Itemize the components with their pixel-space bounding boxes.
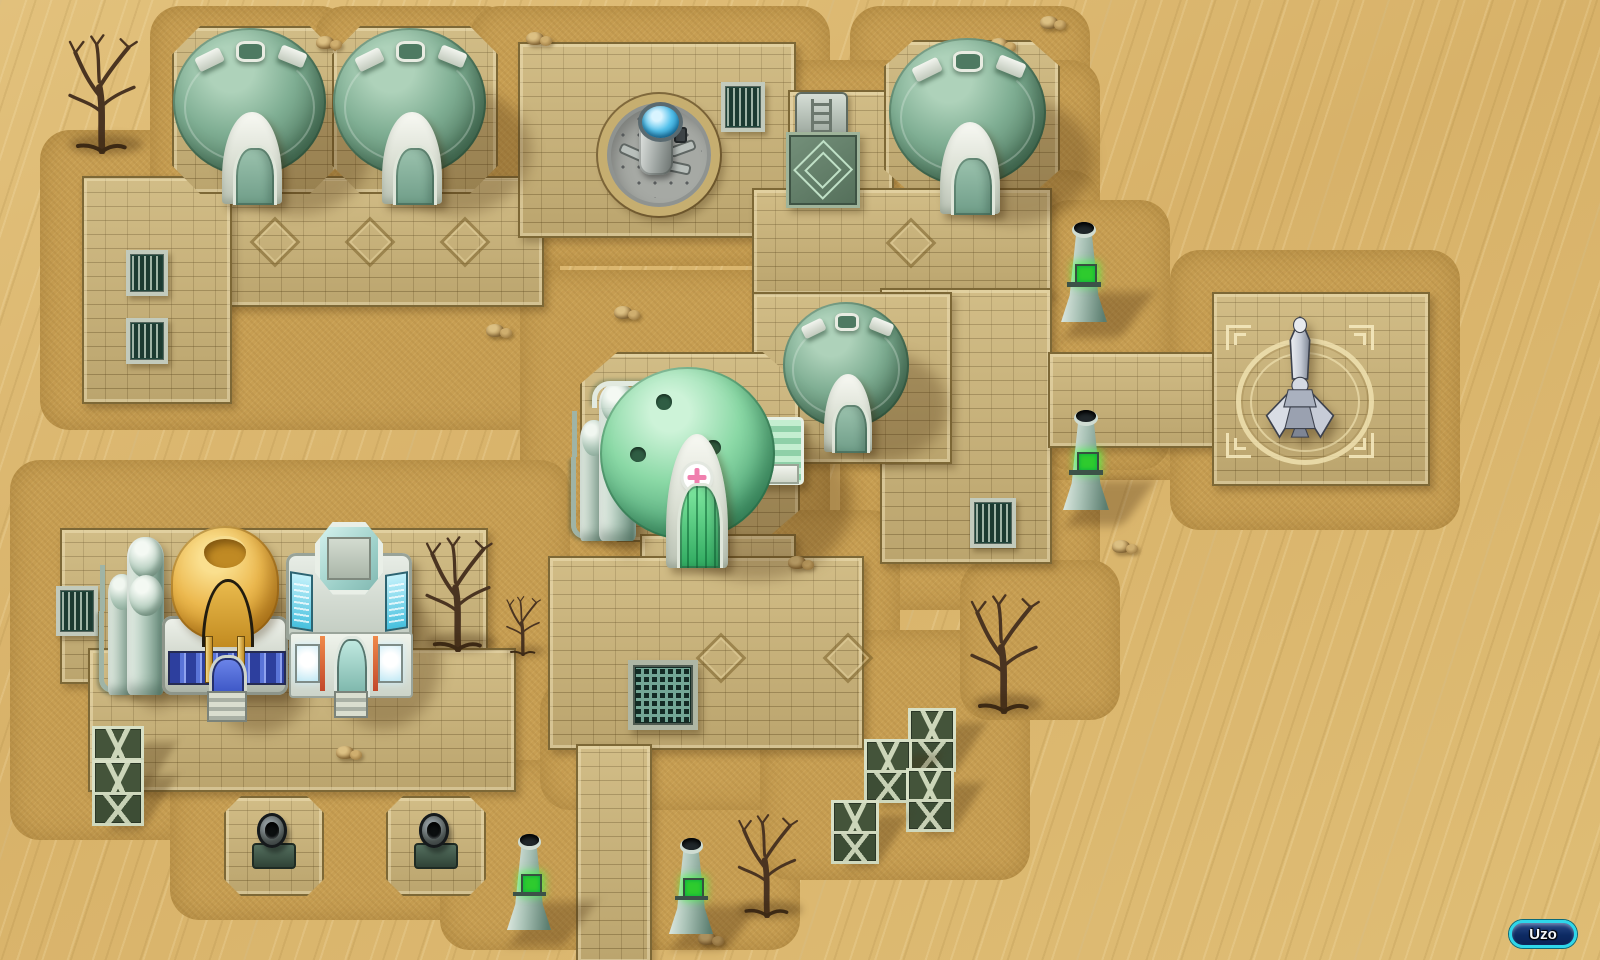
tree-branches bbox=[964, 592, 1044, 714]
crate-2 bbox=[864, 739, 906, 797]
rocks bbox=[336, 742, 362, 762]
door[interactable] bbox=[832, 402, 869, 453]
window-left bbox=[295, 644, 320, 683]
teleporter-pad[interactable] bbox=[786, 92, 854, 202]
glow-window bbox=[1075, 264, 1097, 284]
well-machine[interactable] bbox=[598, 94, 720, 216]
dome-vent-right bbox=[995, 54, 1027, 78]
rocks bbox=[486, 320, 512, 340]
entrance-steps[interactable] bbox=[207, 691, 246, 722]
gold-dome-building[interactable] bbox=[162, 526, 288, 722]
tree-branches bbox=[58, 34, 146, 154]
tower-band bbox=[1069, 470, 1103, 475]
glass-skylight bbox=[315, 522, 383, 595]
tower-band bbox=[513, 892, 546, 897]
dome-vent-left bbox=[354, 46, 385, 71]
dome-vent-left bbox=[800, 318, 826, 339]
tower-cap bbox=[1074, 222, 1094, 234]
corner-glyph bbox=[1226, 433, 1251, 458]
cannon-barrel bbox=[257, 813, 287, 848]
door[interactable] bbox=[951, 155, 996, 215]
tree-branches bbox=[416, 536, 500, 652]
door[interactable] bbox=[393, 145, 437, 205]
cannon-barrel bbox=[419, 813, 449, 848]
tower-cap bbox=[682, 838, 701, 850]
vent-grate-west-1 bbox=[126, 250, 168, 296]
floor-grate-large bbox=[628, 660, 698, 730]
tree-branches bbox=[730, 814, 804, 918]
red-pillar bbox=[373, 636, 378, 691]
dome-vent-left bbox=[911, 56, 943, 82]
corner-glyph bbox=[1349, 433, 1374, 458]
rocks bbox=[1112, 536, 1138, 556]
dome-porthole bbox=[630, 447, 646, 463]
teleporter-floor-pad[interactable] bbox=[786, 132, 860, 208]
vent-grate-west-2 bbox=[126, 318, 168, 364]
vent-grate-plaza bbox=[721, 82, 765, 132]
dead-shrub-small bbox=[500, 596, 546, 656]
vent-grate-east bbox=[970, 498, 1016, 548]
cannon-turret-2 bbox=[412, 812, 456, 868]
beacon-tower-1 bbox=[1058, 222, 1110, 322]
dead-tree-south bbox=[730, 814, 804, 918]
crate-front-panel bbox=[864, 770, 912, 803]
dome-house-2[interactable] bbox=[330, 28, 494, 204]
dome-crater bbox=[204, 536, 245, 567]
door[interactable] bbox=[233, 145, 277, 205]
cyan-screen-right bbox=[385, 571, 408, 632]
dome-house-1[interactable] bbox=[170, 28, 334, 204]
dome-window bbox=[236, 41, 265, 62]
pump-machine bbox=[631, 106, 682, 179]
dome-porthole bbox=[656, 394, 672, 410]
dome-window bbox=[953, 51, 983, 72]
winged-statue bbox=[1262, 312, 1337, 445]
door[interactable] bbox=[677, 483, 723, 569]
location-badge: Uzo bbox=[1509, 920, 1577, 948]
entrance-steps[interactable] bbox=[334, 691, 368, 719]
dome-vent-right bbox=[868, 316, 894, 336]
rocks bbox=[526, 28, 552, 48]
crate-3 bbox=[906, 768, 948, 826]
tree-branches bbox=[500, 596, 546, 656]
dead-tree-east bbox=[964, 592, 1044, 714]
clinic-dome[interactable] bbox=[598, 356, 804, 568]
crate-front-panel bbox=[831, 831, 879, 864]
crate-front-panel bbox=[906, 799, 954, 832]
cannon-turret-1 bbox=[250, 812, 294, 868]
cyan-screen-left bbox=[290, 571, 313, 632]
corner-glyph bbox=[1226, 325, 1251, 350]
crate-4 bbox=[831, 800, 873, 858]
tower-cap bbox=[1076, 410, 1096, 422]
beacon-tower-3 bbox=[504, 834, 554, 930]
crate-front-panel bbox=[92, 792, 144, 826]
pavement-south-road[interactable] bbox=[576, 744, 652, 960]
dead-tree-west bbox=[416, 536, 500, 652]
tower-band bbox=[675, 896, 708, 901]
dome-window bbox=[835, 313, 859, 331]
red-pillar bbox=[320, 636, 325, 691]
statue-shrine[interactable] bbox=[1218, 306, 1382, 468]
glow-window bbox=[1077, 452, 1099, 472]
beacon-tower-4 bbox=[666, 838, 716, 934]
dome-vent-right bbox=[277, 44, 308, 68]
dome-house-northeast[interactable] bbox=[886, 38, 1054, 214]
crate-stack-bottom bbox=[92, 760, 138, 820]
dome-window bbox=[396, 41, 425, 62]
tower-cap bbox=[520, 834, 539, 846]
beacon-tower-2 bbox=[1060, 410, 1112, 510]
game-viewport: Uzo bbox=[0, 0, 1600, 960]
rocks bbox=[1040, 12, 1066, 32]
dome-vent-left bbox=[194, 46, 225, 71]
dome-vent-right bbox=[437, 44, 468, 68]
window-right bbox=[378, 644, 403, 683]
tank-large bbox=[127, 537, 164, 695]
rocks bbox=[614, 302, 640, 322]
water-tank-top bbox=[638, 102, 683, 142]
vent-grate-southwest bbox=[56, 586, 98, 636]
corner-glyph bbox=[1349, 325, 1374, 350]
tech-building[interactable] bbox=[286, 522, 412, 718]
dead-tree-northwest bbox=[58, 34, 146, 154]
door[interactable] bbox=[334, 636, 370, 697]
tower-band bbox=[1067, 282, 1101, 287]
